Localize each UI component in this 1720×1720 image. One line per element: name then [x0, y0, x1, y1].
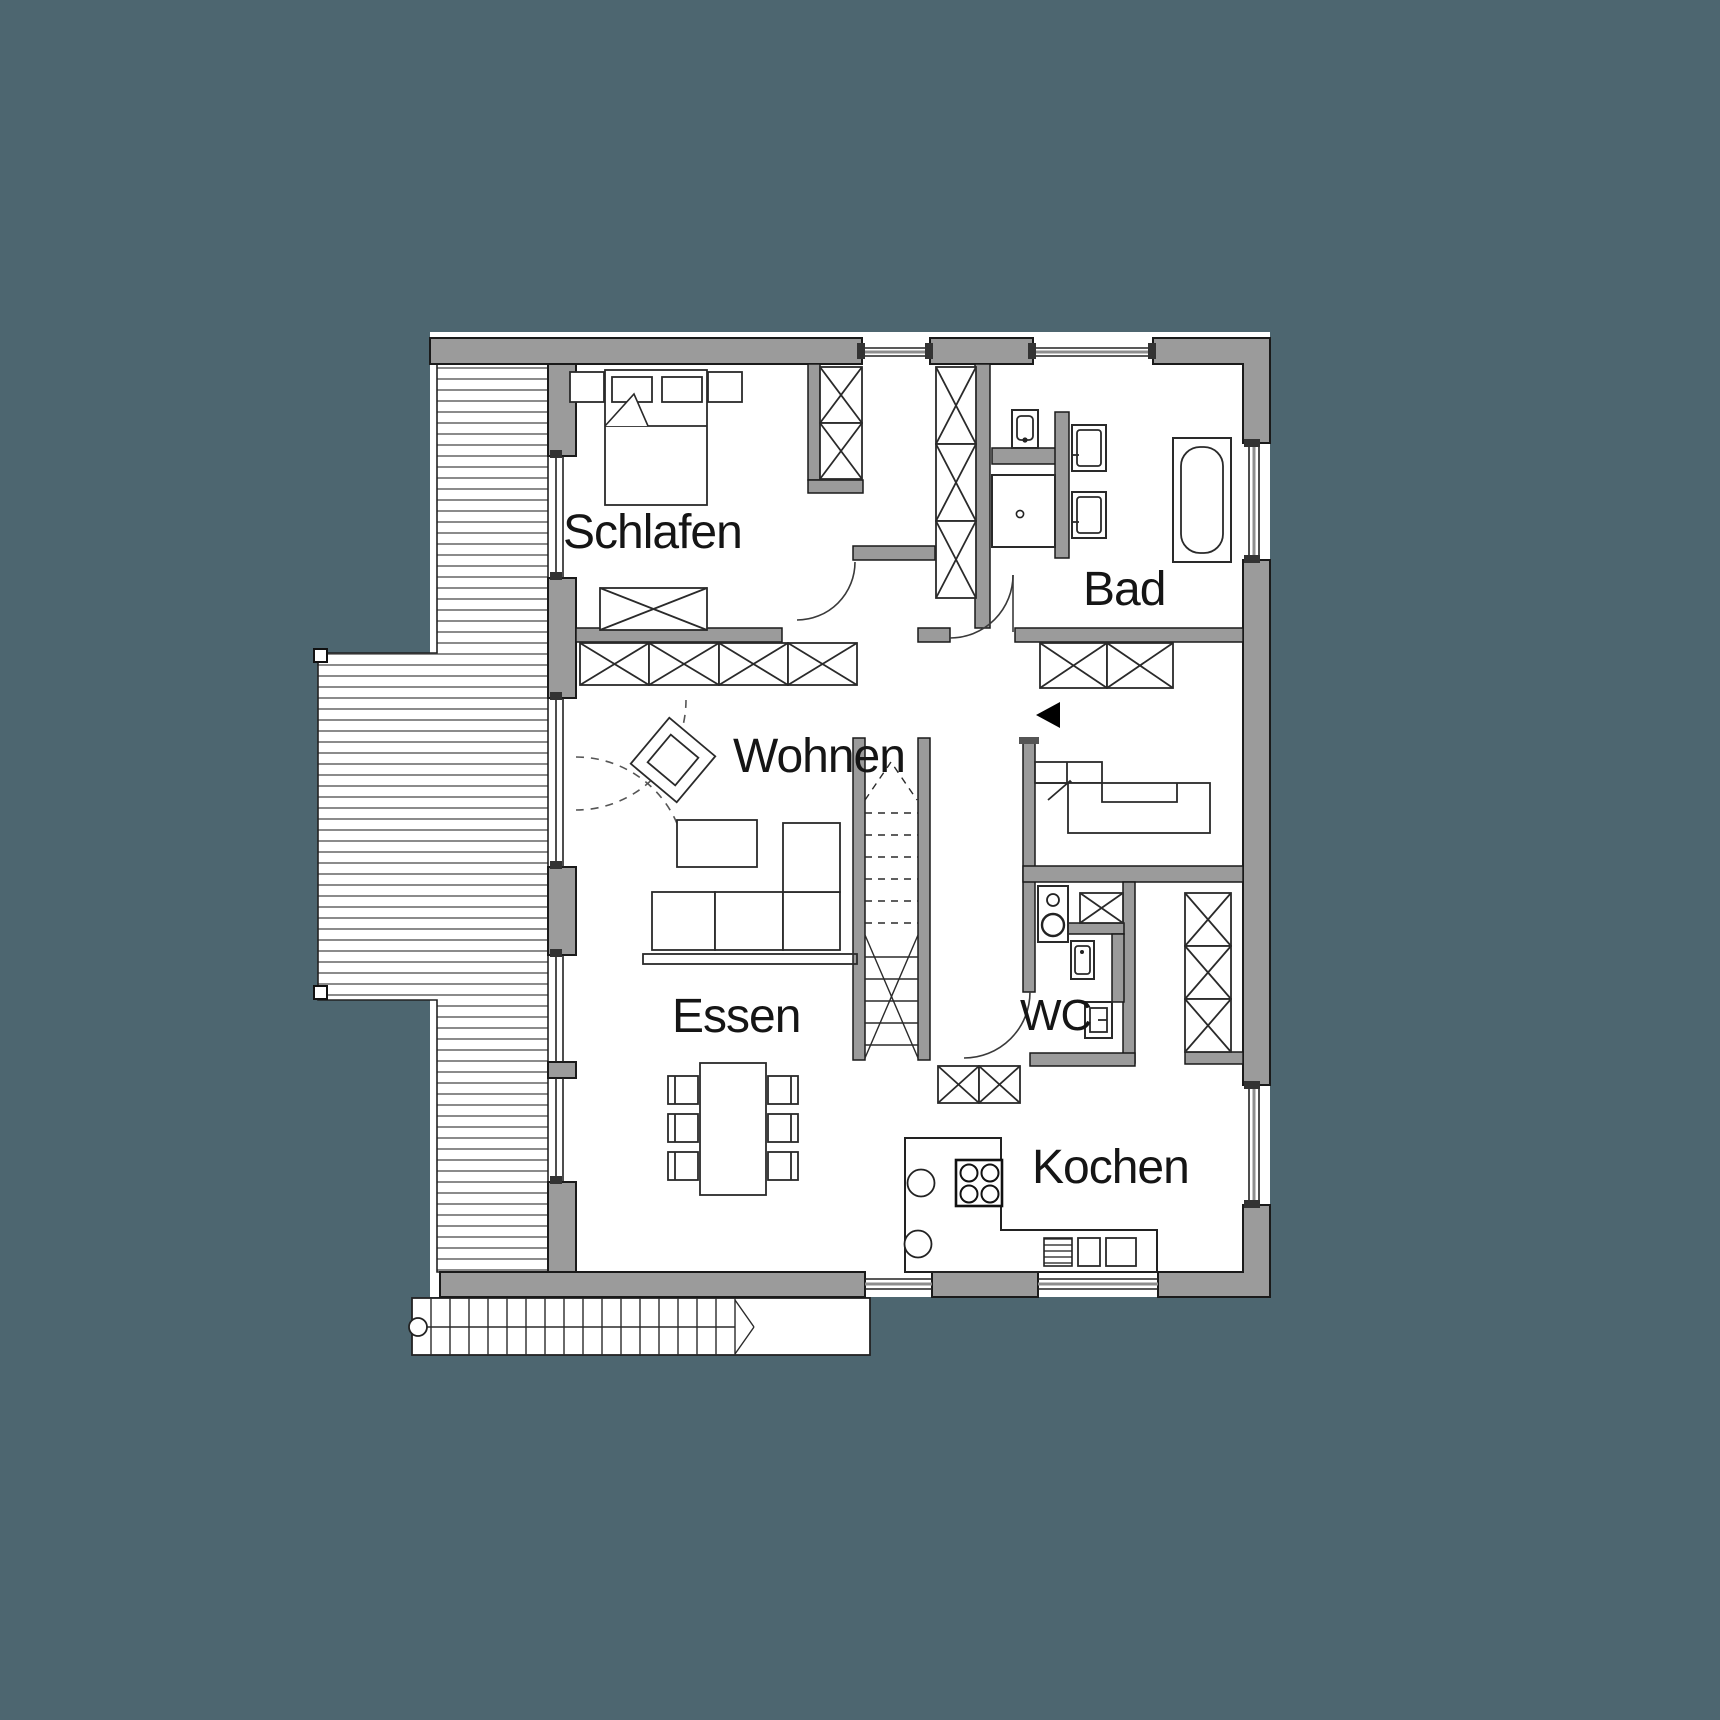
stair-rail-left [853, 738, 865, 1060]
tall-kitchen-cabinets [1185, 893, 1231, 1052]
coffee-table [677, 820, 757, 867]
wall-wc-east [1123, 882, 1135, 1063]
wall-left-post [548, 1062, 576, 1078]
dishwasher [1044, 1238, 1136, 1266]
dining-chair [768, 1076, 798, 1104]
wall-nook-south [853, 546, 935, 560]
wall-schlafen-east [808, 364, 820, 480]
floor-plan-drawing: SchlafenBadWohnenEssenWCKochen [0, 0, 1720, 1720]
wall-wc-stub-h [1066, 923, 1124, 934]
dining-table [700, 1063, 766, 1195]
washbasin [1072, 425, 1106, 471]
wall-bad-south [1015, 628, 1243, 642]
sideboard [600, 588, 707, 630]
wall-kitchen-stub [1185, 1052, 1243, 1064]
room-label-essen: Essen [672, 990, 800, 1043]
dining-chair [668, 1114, 698, 1142]
wall-wc-south [1030, 1053, 1135, 1066]
wc-cabinet [1080, 893, 1123, 923]
shower [992, 475, 1055, 547]
dining-chair [768, 1152, 798, 1180]
wall-left-pier [548, 867, 576, 955]
dining-chair [668, 1076, 698, 1104]
wall-top-pier [930, 338, 1033, 364]
handrail-post [409, 1318, 427, 1336]
exterior-stairs [409, 1298, 870, 1355]
wall-bottom-left [440, 1272, 865, 1297]
kitchen-sink [905, 1231, 932, 1258]
wc-washbasin [1071, 941, 1094, 979]
wall-bad-south [918, 628, 950, 642]
room-label-schlafen: Schlafen [563, 506, 742, 559]
wall-left-pier [548, 1182, 576, 1272]
hall-wardrobe [1040, 643, 1173, 688]
cooktop [956, 1160, 1002, 1206]
washing-machine [1038, 886, 1068, 942]
toilet [1012, 410, 1038, 448]
dining-chair [768, 1114, 798, 1142]
nightstand-left [570, 372, 604, 402]
room-label-kochen: Kochen [1032, 1141, 1189, 1194]
wall-wc-stub-v [1112, 934, 1124, 1002]
kitchen-cabinet-pair [938, 1066, 1020, 1103]
washbasin [1072, 492, 1106, 538]
room-label-bad: Bad [1083, 563, 1165, 616]
essen-furniture [668, 1063, 798, 1195]
floor-plan-page: SchlafenBadWohnenEssenWCKochen [0, 0, 1720, 1720]
wall-right [1243, 560, 1270, 1085]
wall-top-left [430, 338, 862, 364]
deck-post [314, 649, 327, 662]
pillow [662, 377, 702, 402]
dining-chair [668, 1152, 698, 1180]
wall-bad-west [975, 364, 990, 628]
wall-hall-south [1023, 866, 1243, 882]
stair-rail-right [918, 738, 930, 1060]
nightstand-right [708, 372, 742, 402]
wardrobe-closet-east [936, 367, 976, 598]
wall-left-pier [548, 578, 576, 698]
wall-cap [1019, 737, 1039, 744]
bathtub [1173, 438, 1231, 562]
room-label-wc: WC [1020, 991, 1092, 1040]
wall-stub [808, 480, 863, 493]
deck-post [314, 986, 327, 999]
wardrobe-closet-west [820, 367, 862, 479]
wall-bath-stub-v [1055, 412, 1069, 558]
kitchen-sink [908, 1170, 935, 1197]
shelf-wall [580, 643, 857, 685]
room-label-wohnen: Wohnen [733, 730, 905, 783]
